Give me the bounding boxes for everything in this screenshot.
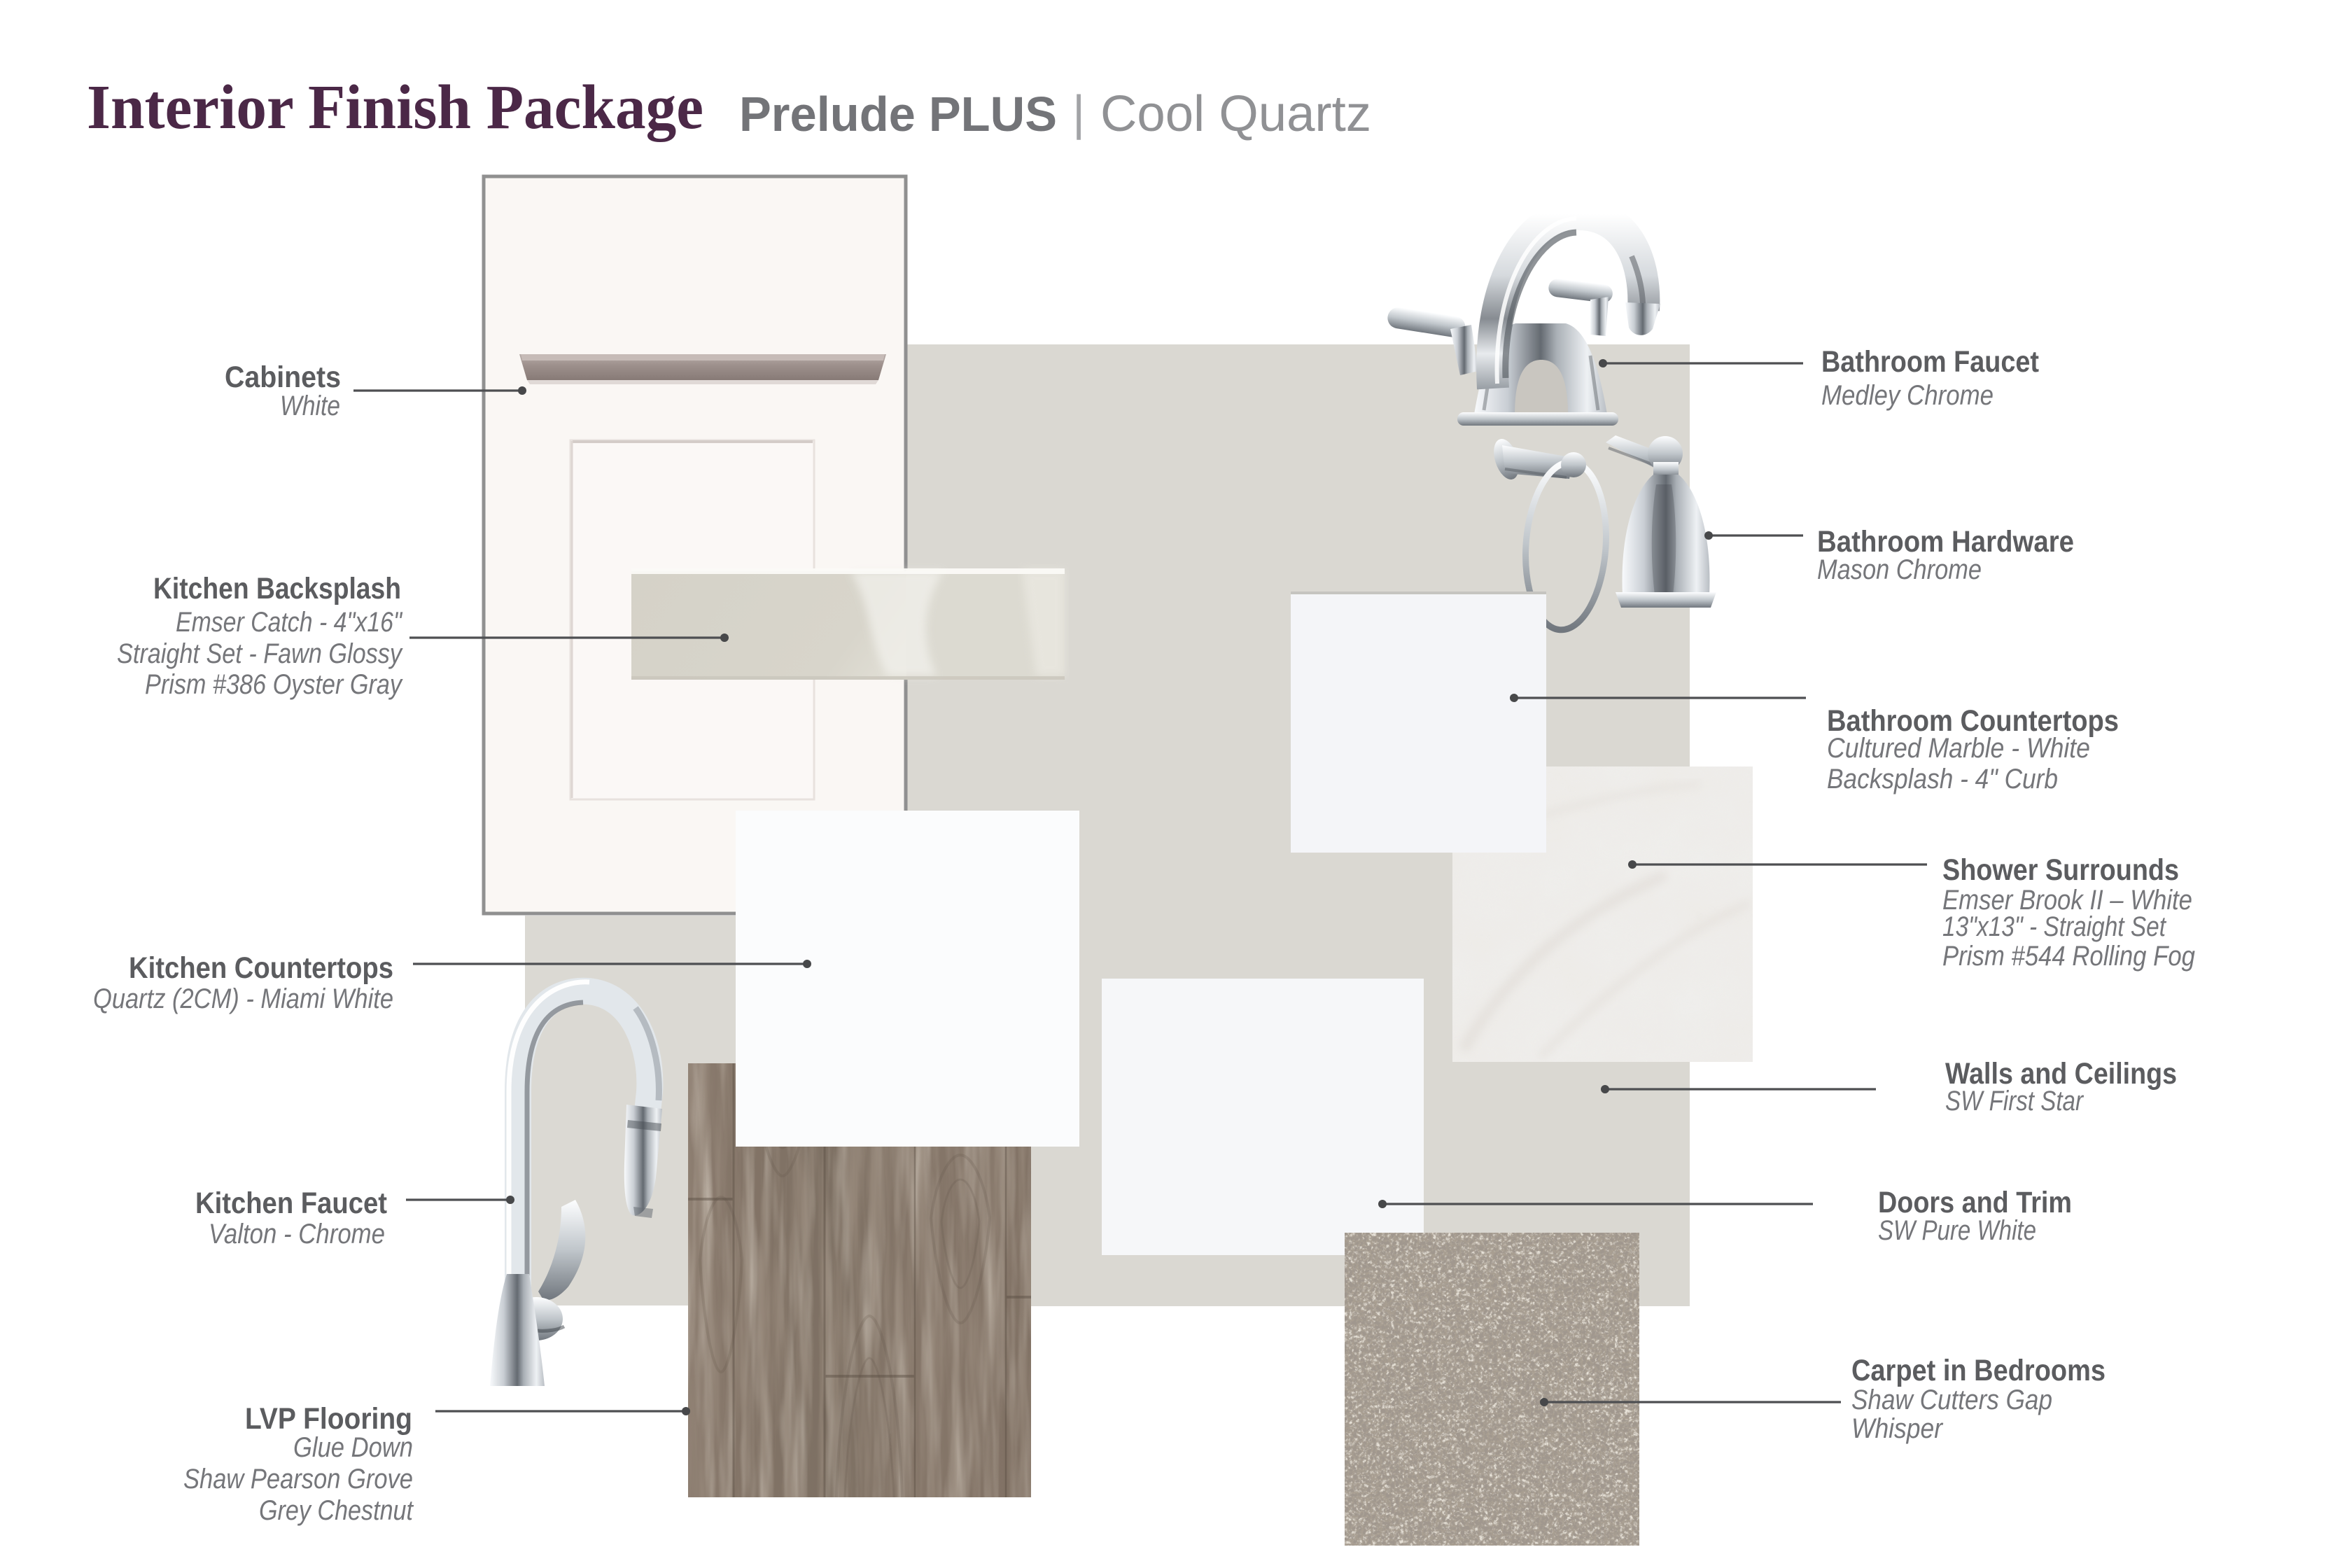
svg-text:Kitchen Backsplash: Kitchen Backsplash (153, 572, 401, 605)
svg-text:Straight Set - Fawn Glossy: Straight Set - Fawn Glossy (117, 638, 404, 669)
svg-text:Valton - Chrome: Valton - Chrome (209, 1219, 385, 1249)
svg-text:Carpet in Bedrooms: Carpet in Bedrooms (1851, 1354, 2106, 1387)
svg-text:Mason Chrome: Mason Chrome (1817, 554, 1982, 585)
svg-text:Kitchen Faucet: Kitchen Faucet (195, 1186, 387, 1220)
svg-text:Cultured Marble - White: Cultured Marble - White (1827, 733, 2090, 764)
svg-text:Bathroom Hardware: Bathroom Hardware (1817, 525, 2074, 559)
svg-text:Glue Down: Glue Down (293, 1432, 413, 1463)
svg-text:Cabinets: Cabinets (225, 360, 341, 394)
svg-text:Shaw Pearson Grove: Shaw Pearson Grove (183, 1464, 413, 1494)
svg-text:Backsplash - 4" Curb: Backsplash - 4" Curb (1827, 764, 2058, 794)
svg-text:Emser Catch - 4"x16": Emser Catch - 4"x16" (176, 607, 403, 638)
svg-text:Doors and Trim: Doors and Trim (1878, 1186, 2072, 1219)
svg-text:Prism #544 Rolling Fog: Prism #544 Rolling Fog (1942, 941, 2195, 972)
svg-text:SW Pure White: SW Pure White (1878, 1215, 2036, 1246)
svg-text:Whisper: Whisper (1851, 1413, 1943, 1444)
svg-text:Prelude PLUS: Prelude PLUS (739, 87, 1057, 141)
svg-text:Shower Surrounds: Shower Surrounds (1942, 853, 2179, 887)
svg-text:Interior Finish Package: Interior Finish Package (87, 73, 703, 142)
svg-text:White: White (280, 391, 340, 421)
svg-text:13"x13" - Straight Set: 13"x13" - Straight Set (1942, 911, 2167, 942)
svg-text:SW First Star: SW First Star (1945, 1086, 2084, 1116)
svg-text:|: | (1072, 85, 1085, 140)
svg-text:Kitchen Countertops: Kitchen Countertops (129, 951, 393, 985)
svg-text:LVP Flooring: LVP Flooring (245, 1402, 412, 1436)
svg-text:Shaw Cutters Gap: Shaw Cutters Gap (1851, 1385, 2052, 1415)
svg-text:Grey Chestnut: Grey Chestnut (259, 1495, 414, 1526)
svg-text:Prism #386 Oyster Gray: Prism #386 Oyster Gray (145, 669, 404, 700)
svg-text:Quartz (2CM) - Miami White: Quartz (2CM) - Miami White (93, 983, 393, 1014)
svg-text:Cool Quartz: Cool Quartz (1100, 86, 1371, 142)
svg-text:Medley Chrome: Medley Chrome (1821, 380, 1994, 411)
svg-text:Bathroom Faucet: Bathroom Faucet (1821, 345, 2039, 379)
